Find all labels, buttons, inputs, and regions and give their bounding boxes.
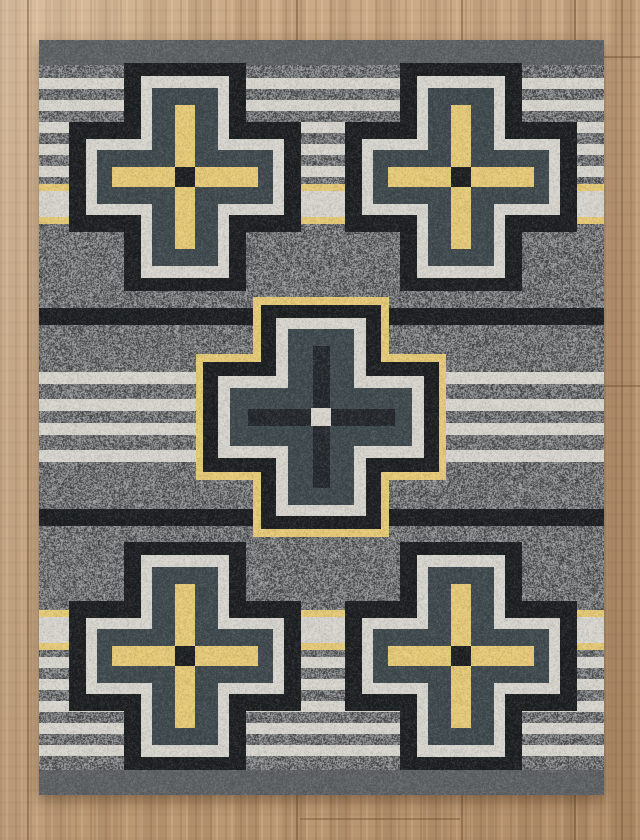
floor-plank-end-seam <box>604 56 640 58</box>
floor-plank-seam <box>621 0 623 840</box>
area-rug <box>39 40 604 795</box>
cross-center-square <box>451 167 471 187</box>
floor-plank-end-seam <box>300 818 460 820</box>
floor-plank-end-seam <box>604 385 640 387</box>
scene <box>0 0 640 840</box>
cross-center-square <box>451 646 471 666</box>
cross-center-square <box>175 167 195 187</box>
cross-center-square <box>175 646 195 666</box>
rug-stripe-band <box>39 40 604 65</box>
cross-center-square <box>311 408 331 426</box>
rug-pattern <box>39 40 604 795</box>
rug-stripe-band <box>39 770 604 795</box>
floor-plank-seam <box>27 0 29 840</box>
